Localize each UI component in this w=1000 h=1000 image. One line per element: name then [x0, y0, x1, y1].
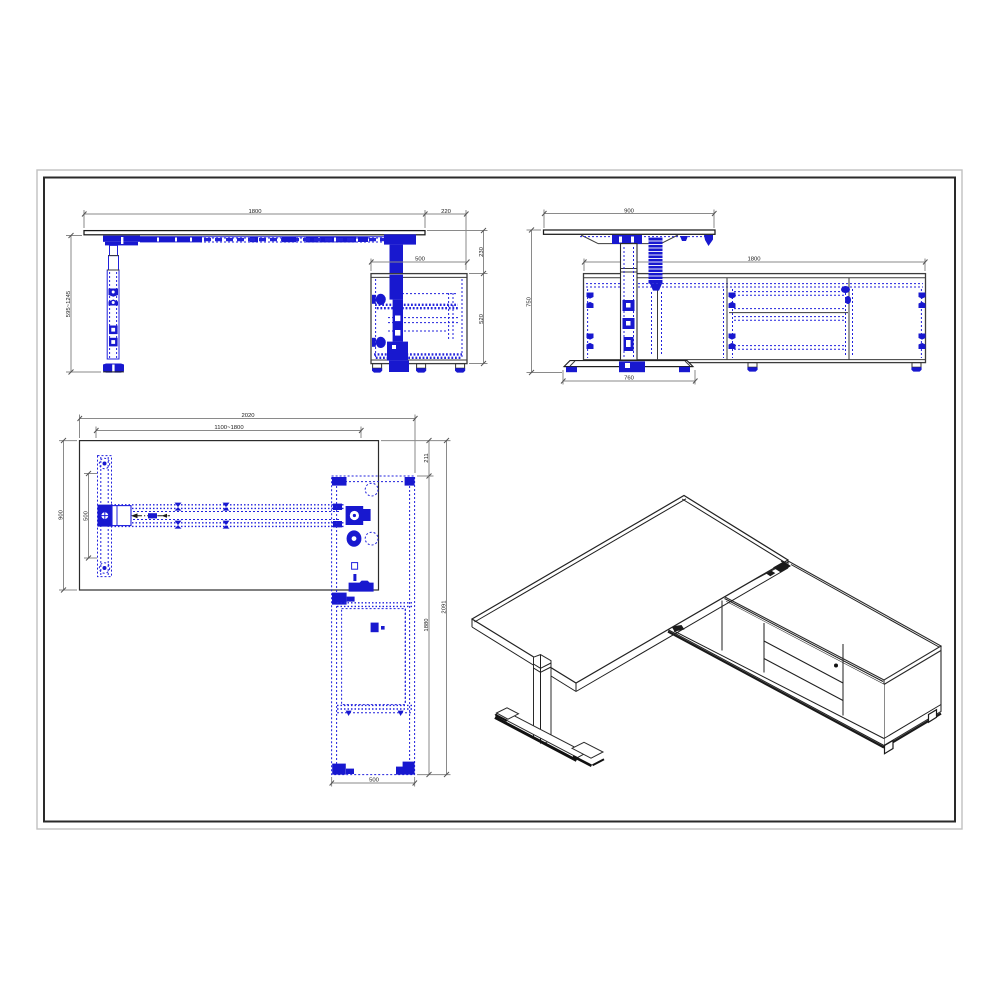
svg-text:1100~1800: 1100~1800: [214, 425, 244, 431]
svg-text:220: 220: [441, 209, 452, 215]
svg-text:211: 211: [424, 453, 430, 462]
svg-text:2020: 2020: [241, 413, 255, 419]
svg-text:1880: 1880: [424, 618, 430, 632]
svg-text:500: 500: [84, 510, 90, 521]
svg-text:500: 500: [415, 257, 426, 263]
svg-text:900: 900: [624, 209, 635, 215]
svg-text:230: 230: [479, 246, 485, 257]
svg-text:1800: 1800: [747, 257, 761, 263]
svg-text:520: 520: [479, 313, 485, 324]
svg-text:595~1245: 595~1245: [66, 290, 72, 317]
svg-text:760: 760: [624, 376, 635, 382]
svg-text:750: 750: [527, 296, 533, 307]
svg-text:2091: 2091: [442, 600, 448, 613]
svg-text:500: 500: [369, 778, 380, 784]
svg-text:900: 900: [59, 509, 65, 520]
svg-text:1800: 1800: [248, 209, 262, 215]
